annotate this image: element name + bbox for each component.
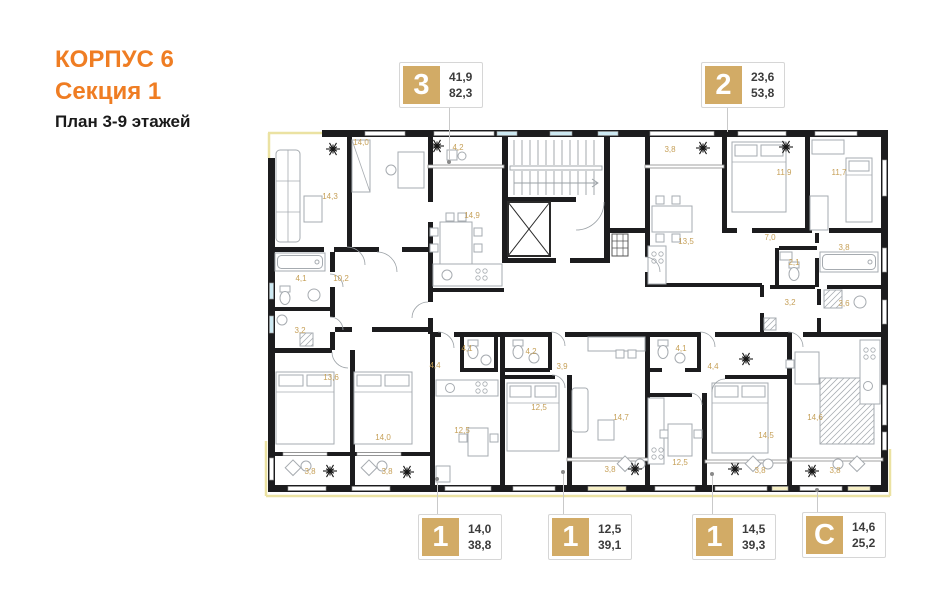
badge-living-area: 14,6	[852, 519, 882, 535]
apartment-badge-2room[interactable]: 2 23,6 53,8	[701, 62, 785, 108]
badge-type: 2	[705, 66, 742, 104]
room-area-label: 3,8	[664, 145, 676, 154]
plant-icon	[728, 463, 742, 475]
room-area-label: 14,0	[375, 433, 391, 442]
vent-shaft	[612, 234, 628, 256]
plant-icon	[326, 143, 340, 155]
marker-anchor-dot	[561, 470, 565, 474]
room-area-label: 3,8	[838, 243, 850, 252]
room-area-label: 13,6	[323, 373, 339, 382]
plant-icon	[400, 466, 414, 478]
room-area-label: 13,5	[678, 237, 694, 246]
plant-icon	[805, 465, 819, 477]
badge-type: С	[806, 516, 843, 554]
room-area-label: 10,2	[333, 274, 349, 283]
apartment-badge-1room-c[interactable]: 1 14,5 39,3	[692, 514, 776, 560]
badge-type: 1	[696, 518, 733, 556]
marker-anchor-dot	[815, 488, 819, 492]
room-area-label: 12,5	[672, 458, 688, 467]
marker-connector	[817, 491, 818, 512]
plant-icon	[323, 465, 337, 477]
badge-total-area: 39,3	[742, 537, 772, 553]
room-area-label: 4,4	[429, 361, 441, 370]
room-area-label: 3,2	[784, 298, 796, 307]
room-area-label: 14,3	[322, 192, 338, 201]
badge-total-area: 38,8	[468, 537, 498, 553]
badge-type: 1	[552, 518, 589, 556]
room-area-label: 4,1	[295, 274, 307, 283]
room-area-label: 3,9	[556, 362, 568, 371]
room-area-label: 14,6	[807, 413, 823, 422]
room-area-label: 7,0	[764, 233, 776, 242]
badge-living-area: 12,5	[598, 521, 628, 537]
marker-connector	[727, 108, 728, 132]
badge-living-area: 23,6	[751, 69, 781, 85]
marker-anchor-dot	[447, 160, 451, 164]
apartment-badge-studio[interactable]: С 14,6 25,2	[802, 512, 886, 558]
room-area-label: 3,8	[304, 467, 316, 476]
marker-connector	[449, 108, 450, 162]
badge-living-area: 14,0	[468, 521, 498, 537]
room-area-label: 4,1	[675, 344, 687, 353]
room-area-label: 11,7	[832, 168, 848, 177]
badge-type: 1	[422, 518, 459, 556]
marker-connector	[563, 473, 564, 514]
room-area-label: 3,8	[381, 467, 393, 476]
marker-anchor-dot	[710, 472, 714, 476]
room-area-label: 3,8	[604, 465, 616, 474]
floor-plan-page: КОРПУС 6 Секция 1 План 3-9 этажей 14,314…	[0, 0, 941, 600]
apartment-badge-1room-b[interactable]: 1 12,5 39,1	[548, 514, 632, 560]
room-area-label: 2,1	[788, 258, 800, 267]
room-area-label: 12,5	[454, 426, 470, 435]
room-area-label: 4,4	[707, 362, 719, 371]
room-area-label: 3,2	[294, 326, 306, 335]
room-area-label: 3,8	[754, 466, 766, 475]
apartment-badge-1room-a[interactable]: 1 14,0 38,8	[418, 514, 502, 560]
apartment-badge-3room[interactable]: 3 41,9 82,3	[399, 62, 483, 108]
elevator	[508, 202, 550, 256]
room-area-label: 4,2	[525, 347, 537, 356]
badge-living-area: 41,9	[449, 69, 479, 85]
room-area-label: 14,7	[613, 413, 629, 422]
room-area-label: 14,9	[464, 211, 480, 220]
badge-total-area: 82,3	[449, 85, 479, 101]
room-area-label: 11,9	[777, 168, 793, 177]
plant-icon	[696, 142, 710, 154]
staircase	[510, 140, 602, 195]
room-area-label: 14,0	[353, 138, 369, 147]
marker-anchor-dot	[435, 477, 439, 481]
room-area-label: 14,5	[758, 431, 774, 440]
badge-total-area: 25,2	[852, 535, 882, 551]
badge-type: 3	[403, 66, 440, 104]
room-area-label: 4,1	[461, 344, 473, 353]
marker-connector	[712, 475, 713, 514]
plant-icon	[739, 353, 753, 365]
room-area-label: 12,5	[531, 403, 547, 412]
room-area-label: 3,8	[829, 466, 841, 475]
badge-total-area: 53,8	[751, 85, 781, 101]
room-area-label: 3,6	[838, 299, 850, 308]
room-area-label: 4,2	[452, 143, 464, 152]
marker-connector	[437, 480, 438, 514]
badge-total-area: 39,1	[598, 537, 628, 553]
badge-living-area: 14,5	[742, 521, 772, 537]
